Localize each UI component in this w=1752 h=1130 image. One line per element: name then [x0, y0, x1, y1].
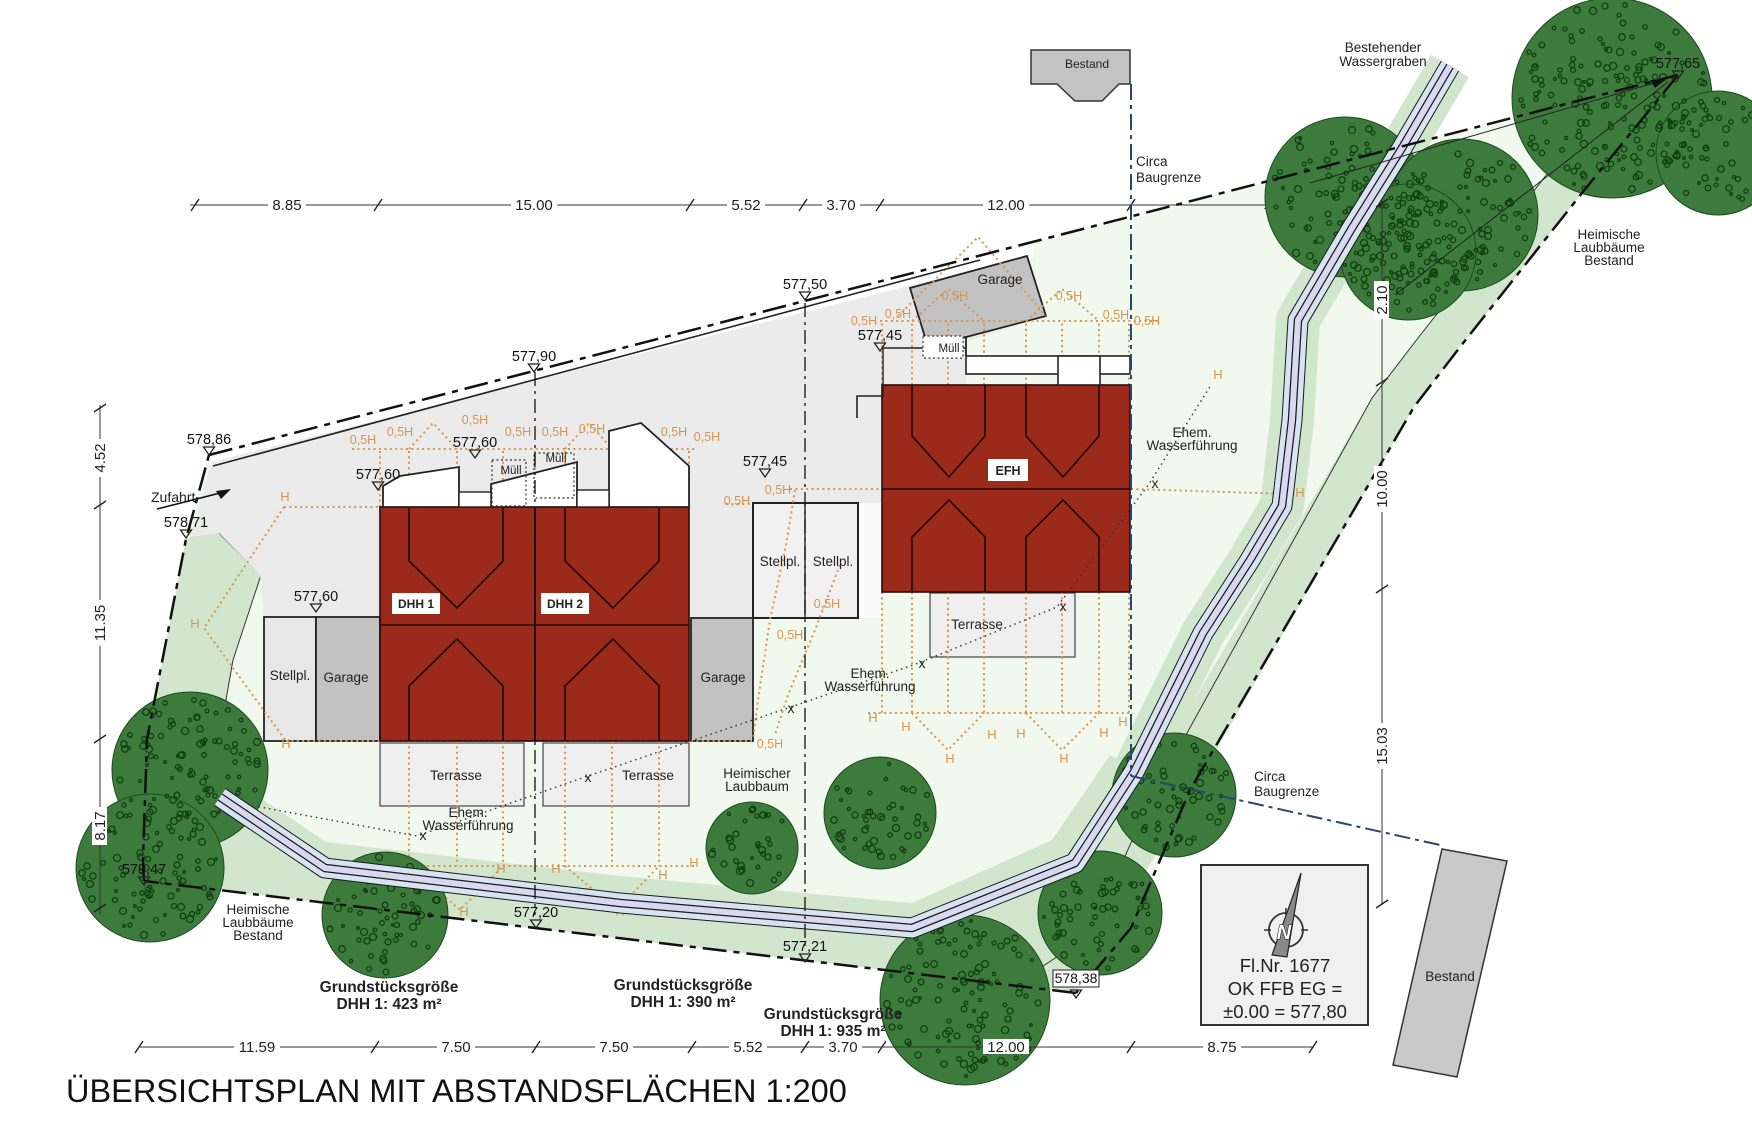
svg-text:8.85: 8.85 — [272, 197, 301, 214]
svg-text:0,5H: 0,5H — [757, 737, 783, 751]
svg-text:DHH 1: DHH 1 — [398, 597, 434, 611]
svg-text:0,5H: 0,5H — [885, 307, 911, 321]
svg-text:11.59: 11.59 — [239, 1039, 275, 1056]
svg-text:577,60: 577,60 — [356, 467, 400, 483]
svg-text:Grundstücksgröße: Grundstücksgröße — [614, 977, 753, 994]
svg-text:578,71: 578,71 — [164, 515, 208, 531]
svg-text:0,5H: 0,5H — [462, 413, 488, 427]
svg-text:Bestand: Bestand — [1425, 969, 1475, 984]
svg-text:H: H — [868, 710, 877, 725]
svg-text:3.70: 3.70 — [828, 1039, 857, 1056]
svg-text:Fl.Nr. 1677: Fl.Nr. 1677 — [1240, 955, 1331, 976]
svg-text:577,45: 577,45 — [858, 328, 902, 344]
svg-text:Wassergraben: Wassergraben — [1339, 54, 1426, 69]
svg-text:577,45: 577,45 — [743, 454, 787, 470]
svg-text:Müll: Müll — [500, 465, 521, 477]
svg-text:577,65: 577,65 — [1656, 56, 1700, 72]
svg-text:Stellpl.: Stellpl. — [813, 554, 854, 569]
svg-text:Garage: Garage — [323, 670, 368, 685]
svg-text:H: H — [1016, 726, 1025, 741]
svg-text:577,21: 577,21 — [783, 939, 827, 955]
svg-text:x: x — [788, 700, 795, 716]
svg-text:H: H — [551, 861, 560, 876]
svg-text:12.00: 12.00 — [987, 197, 1025, 214]
svg-text:5.52: 5.52 — [731, 197, 760, 214]
svg-text:OK FFB EG =: OK FFB EG = — [1228, 978, 1343, 999]
svg-text:11.35: 11.35 — [92, 605, 109, 641]
svg-text:577,90: 577,90 — [512, 349, 556, 365]
svg-text:ÜBERSICHTSPLAN MIT ABSTANDSFLÄ: ÜBERSICHTSPLAN MIT ABSTANDSFLÄCHEN 1:200 — [66, 1073, 847, 1109]
svg-text:N: N — [1277, 922, 1292, 944]
svg-text:0,5H: 0,5H — [350, 433, 376, 447]
svg-text:Grundstücksgröße: Grundstücksgröße — [320, 979, 459, 996]
svg-text:x: x — [1152, 475, 1159, 491]
svg-text:Grundstücksgröße: Grundstücksgröße — [764, 1006, 903, 1023]
svg-text:H: H — [459, 904, 468, 919]
svg-text:Baugrenze: Baugrenze — [1254, 784, 1319, 799]
svg-text:12.00: 12.00 — [987, 1039, 1025, 1056]
svg-text:0,5H: 0,5H — [661, 425, 687, 439]
svg-text:x: x — [919, 655, 926, 671]
svg-text:H: H — [1295, 485, 1304, 500]
svg-text:0,5H: 0,5H — [724, 494, 750, 508]
svg-text:578,86: 578,86 — [187, 432, 231, 448]
svg-text:x: x — [585, 769, 592, 785]
svg-text:15.03: 15.03 — [1374, 727, 1391, 765]
svg-text:H: H — [280, 489, 289, 504]
svg-text:DHH 1: 390 m²: DHH 1: 390 m² — [630, 994, 735, 1011]
svg-text:0,5H: 0,5H — [814, 597, 840, 611]
svg-text:10.00: 10.00 — [1374, 470, 1391, 508]
svg-text:H: H — [689, 855, 698, 870]
svg-text:579,47: 579,47 — [122, 862, 166, 878]
svg-text:7.50: 7.50 — [599, 1039, 628, 1056]
svg-text:Bestand: Bestand — [233, 928, 283, 943]
svg-text:3.70: 3.70 — [826, 197, 855, 214]
svg-text:Zufahrt: Zufahrt — [151, 489, 195, 505]
svg-text:Wasserführung: Wasserführung — [1146, 438, 1237, 453]
svg-text:DHH 2: DHH 2 — [547, 597, 583, 611]
svg-text:0,5H: 0,5H — [851, 314, 877, 328]
svg-text:Stellpl.: Stellpl. — [760, 554, 801, 569]
svg-text:578,38: 578,38 — [1055, 970, 1098, 986]
svg-text:Bestehender: Bestehender — [1345, 40, 1422, 55]
svg-text:Wasserführung: Wasserführung — [422, 818, 513, 833]
svg-text:x: x — [1060, 598, 1067, 614]
svg-text:0,5H: 0,5H — [505, 425, 531, 439]
svg-text:Wasserführung: Wasserführung — [824, 679, 915, 694]
svg-text:0,5H: 0,5H — [777, 628, 803, 642]
svg-text:H: H — [901, 719, 910, 734]
svg-text:0,5H: 0,5H — [1056, 289, 1082, 303]
svg-text:Müll: Müll — [545, 453, 566, 465]
svg-text:Bestand: Bestand — [1065, 57, 1109, 71]
svg-text:H: H — [1059, 751, 1068, 766]
svg-text:577,60: 577,60 — [453, 435, 497, 451]
svg-text:Garage: Garage — [977, 272, 1022, 287]
svg-text:H: H — [496, 861, 505, 876]
svg-text:EFH: EFH — [996, 464, 1021, 478]
svg-text:x: x — [420, 827, 427, 843]
svg-text:H: H — [945, 751, 954, 766]
svg-text:±0.00 = 577,80: ±0.00 = 577,80 — [1223, 1001, 1347, 1022]
svg-text:0,5H: 0,5H — [387, 425, 413, 439]
svg-text:H: H — [1099, 725, 1108, 740]
svg-text:7.50: 7.50 — [441, 1039, 470, 1056]
svg-text:Garage: Garage — [700, 670, 745, 685]
svg-text:15.00: 15.00 — [515, 197, 553, 214]
svg-text:0,5H: 0,5H — [579, 422, 605, 436]
svg-text:DHH 1: 423 m²: DHH 1: 423 m² — [336, 996, 441, 1013]
svg-text:577,60: 577,60 — [294, 589, 338, 605]
svg-text:H: H — [1213, 367, 1222, 382]
svg-text:0,5H: 0,5H — [542, 425, 568, 439]
svg-text:577,50: 577,50 — [783, 277, 827, 293]
svg-text:0,5H: 0,5H — [942, 289, 968, 303]
svg-text:5.52: 5.52 — [733, 1039, 762, 1056]
svg-text:577,20: 577,20 — [514, 905, 558, 921]
svg-text:Circa: Circa — [1136, 154, 1168, 169]
svg-text:Baugrenze: Baugrenze — [1136, 170, 1201, 185]
svg-text:Terrasse: Terrasse — [622, 768, 674, 783]
svg-text:DHH 1: 935 m²: DHH 1: 935 m² — [780, 1023, 885, 1040]
svg-text:Müll: Müll — [938, 343, 959, 355]
svg-text:0,5H: 0,5H — [765, 483, 791, 497]
svg-text:H: H — [190, 616, 199, 631]
svg-text:Bestand: Bestand — [1584, 253, 1634, 268]
svg-text:0,5H: 0,5H — [1103, 308, 1129, 322]
svg-text:4.52: 4.52 — [92, 443, 109, 472]
svg-text:8.75: 8.75 — [1207, 1039, 1236, 1056]
svg-text:0,5H: 0,5H — [1134, 314, 1160, 328]
svg-text:8.17: 8.17 — [92, 811, 109, 840]
svg-text:H: H — [658, 867, 667, 882]
svg-text:H: H — [281, 736, 290, 751]
svg-text:0,5H: 0,5H — [694, 430, 720, 444]
svg-text:2.10: 2.10 — [1374, 285, 1391, 314]
svg-text:Terrasse: Terrasse — [430, 768, 482, 783]
svg-text:Circa: Circa — [1254, 769, 1286, 784]
svg-text:H: H — [987, 727, 996, 742]
svg-text:H: H — [1118, 714, 1127, 729]
svg-text:Laubbaum: Laubbaum — [725, 779, 789, 794]
svg-text:Terrasse: Terrasse — [951, 617, 1003, 632]
svg-text:Stellpl.: Stellpl. — [270, 668, 311, 683]
